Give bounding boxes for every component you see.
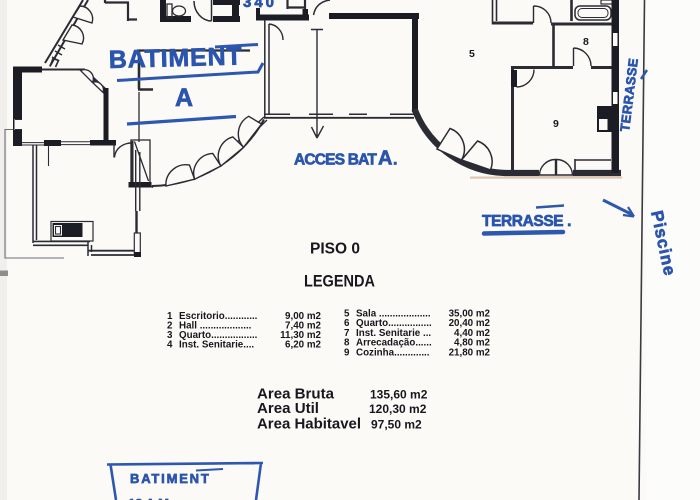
svg-text:5: 5	[469, 48, 475, 60]
svg-text:PISO 0: PISO 0	[310, 241, 360, 258]
svg-text:Area Habitavel: Area Habitavel	[257, 416, 361, 433]
svg-text:97,50 m2: 97,50 m2	[371, 418, 422, 432]
svg-text:21,80 m2: 21,80 m2	[449, 347, 491, 358]
svg-text:135,60 m2: 135,60 m2	[370, 388, 428, 402]
svg-text:6,20 m2: 6,20 m2	[285, 340, 322, 351]
svg-text:Cozinha.............: Cozinha.............	[356, 347, 430, 358]
svg-text:Inst. Senitarie....: Inst. Senitarie....	[179, 340, 254, 351]
svg-text:120,30 m2: 120,30 m2	[369, 402, 427, 416]
svg-text:.: .	[393, 152, 397, 169]
svg-text:9: 9	[344, 347, 350, 358]
svg-text:8: 8	[583, 36, 589, 48]
svg-text:340: 340	[243, 0, 277, 11]
svg-text:9: 9	[553, 118, 559, 130]
svg-text:12 A M: 12 A M	[128, 496, 169, 500]
svg-text:Area Util: Area Util	[257, 400, 319, 417]
svg-text:ACCES BAT: ACCES BAT	[294, 152, 377, 169]
svg-text:LEGENDA: LEGENDA	[304, 272, 375, 291]
svg-text:TERRASSE .: TERRASSE .	[482, 213, 571, 230]
svg-text:A: A	[378, 148, 392, 170]
svg-text:BATIMENT: BATIMENT	[130, 471, 211, 486]
svg-text:A: A	[175, 84, 193, 112]
svg-text:4: 4	[167, 340, 173, 351]
